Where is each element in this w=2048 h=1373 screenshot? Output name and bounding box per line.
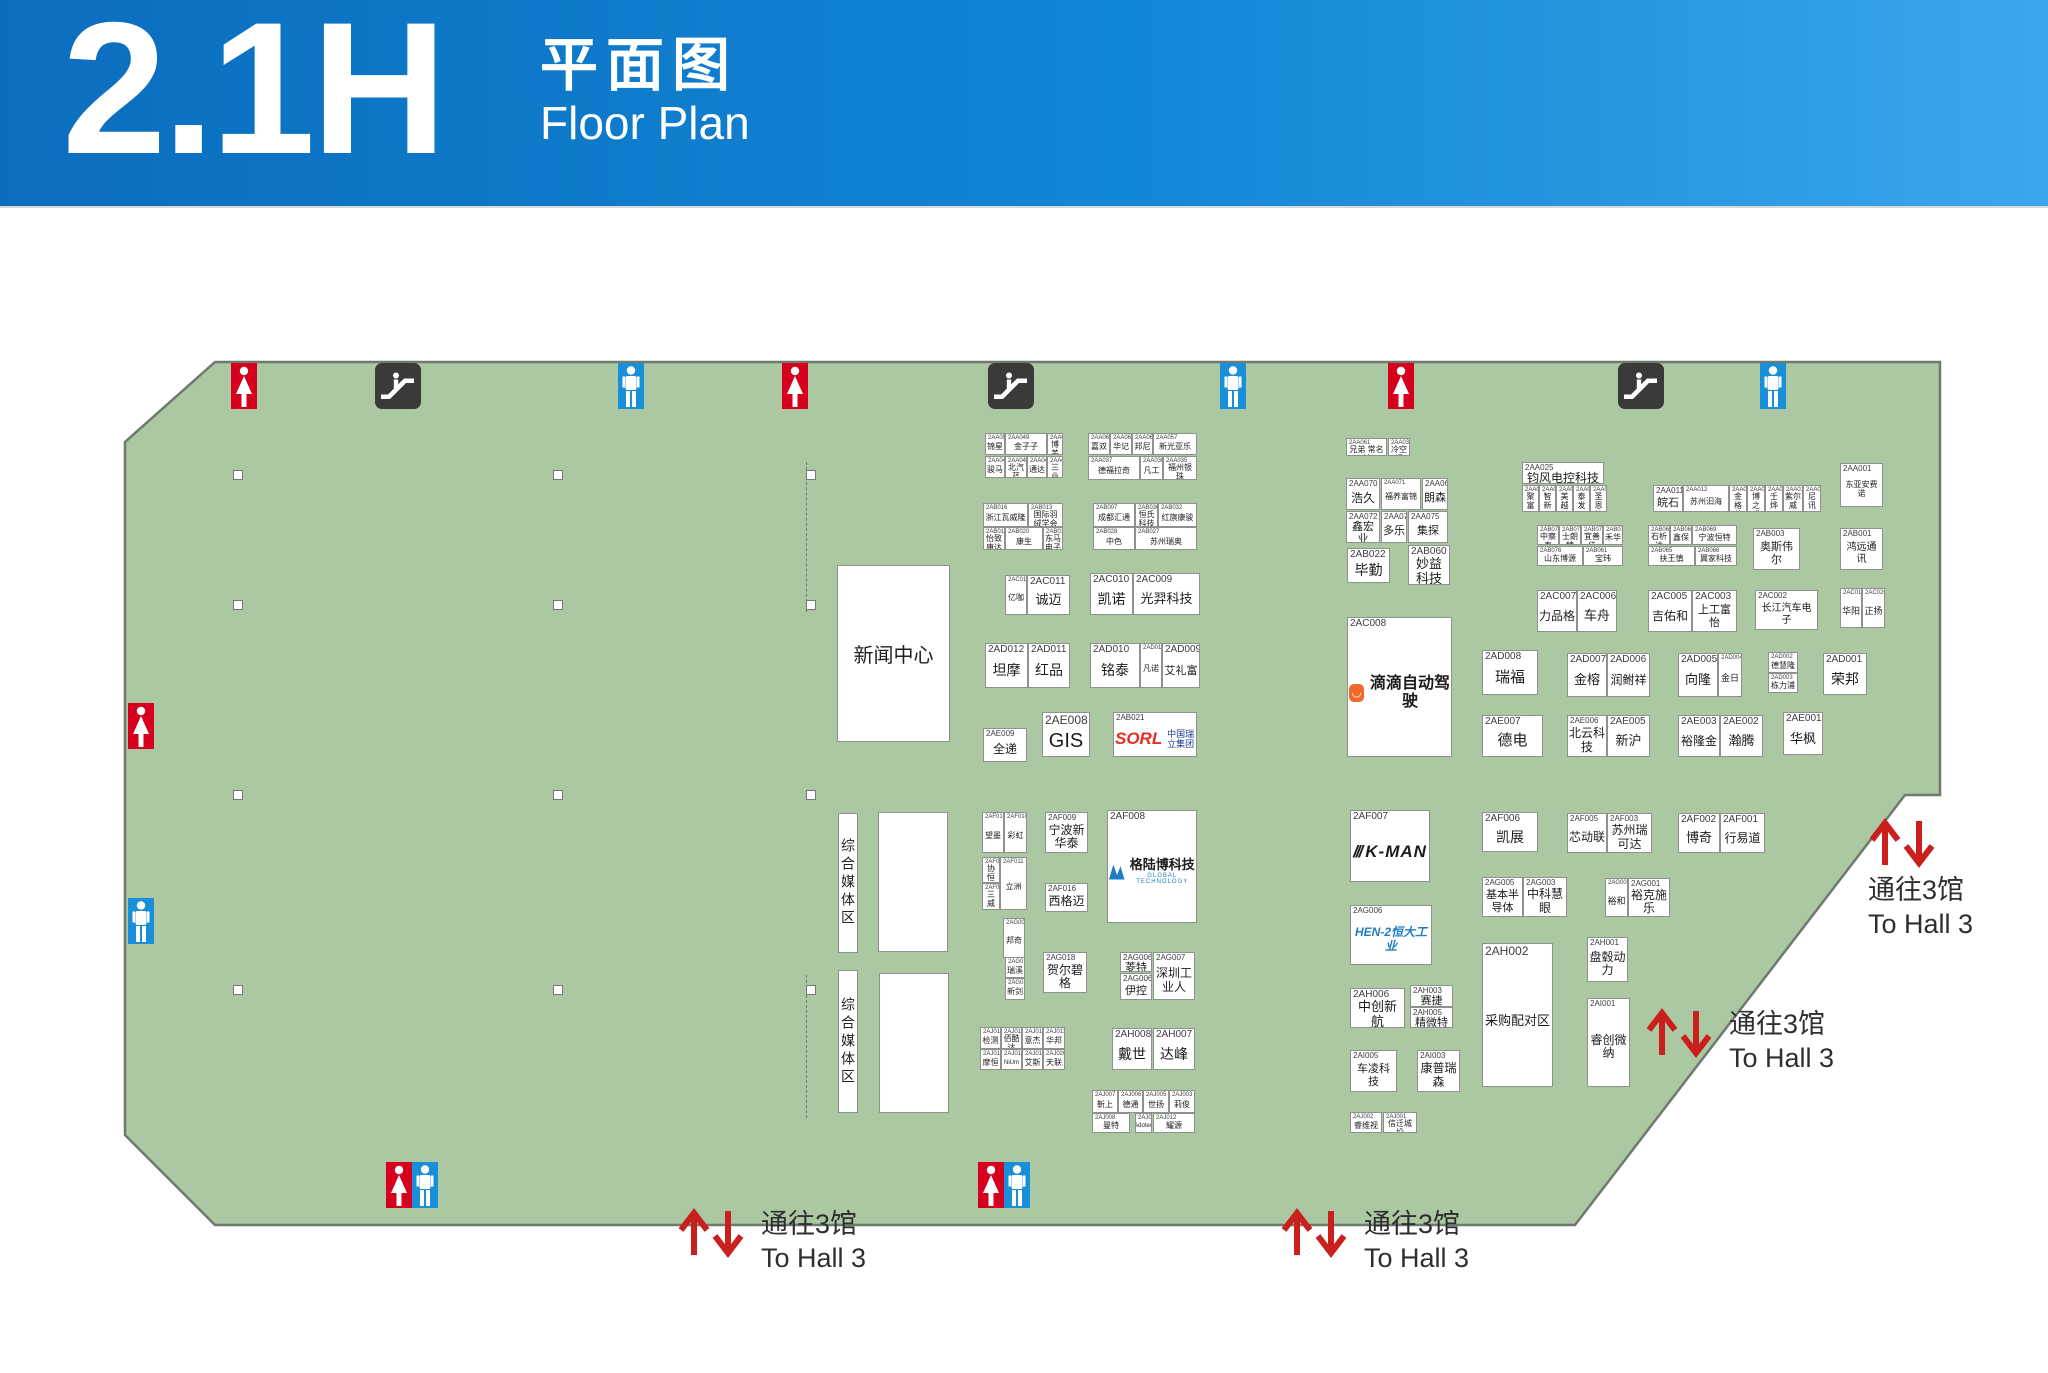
booth-id: 2AD008 [1483,651,1537,662]
booth-id: 2AB003 [1754,529,1799,538]
booth-2AJ005: 2AJ005世扬 [1143,1090,1169,1113]
booth-name: 鑫宏业 [1347,521,1379,543]
booth-name: 芯动联 [1568,823,1606,852]
booth-id: 2AD007 [1568,654,1606,665]
booth-name: 坦摩 [986,655,1027,687]
exit-label-zh: 通往3馆 [1364,1208,1469,1242]
booth-id: 2AG001 [1629,879,1669,888]
booth-2AH006: 2AH006中创新航 [1350,988,1405,1028]
booth-2AA067: 2AA067华记 [1110,433,1132,455]
booth-name: 国际羽绒学会 [1029,511,1062,527]
booth-2AB022: 2AB022毕勤 [1347,548,1390,583]
booth-name: 东亚安费诺 [1841,473,1882,506]
booth-name: 聚富 [1523,493,1538,511]
didi-logo-icon: ◡ [1349,684,1364,702]
booth-name: 通达 [1028,464,1046,477]
booth-name: 意杰 [1023,1035,1042,1048]
booth-name: 瑞溪 [1006,965,1024,977]
booth-name: 睿维视 [1351,1120,1381,1132]
booth-name: 贺尔碧格 [1044,962,1086,992]
booth-name: 行易道 [1721,825,1764,852]
booth-2AJ010: 2AJ010Adotec [1135,1113,1152,1133]
booth-id: 2AA070 [1347,479,1379,488]
booth-name: 金子子 [1006,441,1046,454]
booth-id: 2AH001 [1588,938,1627,947]
escalator-icon [375,363,421,409]
floor-plan-page: 2.1H 平面图 Floor Plan 新闻中心综合媒体区综合媒体区2AA052… [0,0,2048,1373]
booth-2AD002: 2AD002德慧隆 [1768,652,1798,673]
booth-id: 2AC003 [1693,591,1736,602]
booth-name: 向隆 [1679,665,1717,696]
booth-id: 2AD010 [1091,644,1139,655]
up-down-arrows-icon [677,1208,745,1258]
booth-name: 华记 [1111,441,1131,454]
booth-id: 2AA057 [1154,434,1196,441]
booth-name: 北云科技 [1568,725,1606,756]
booth-id: 2AB028 [1094,528,1134,535]
booth-2AJ019: 2AJ019艾斯 [1022,1049,1043,1070]
booth-2AF002: 2AF002博奇 [1678,813,1720,853]
booth-name: 赛捷 [1411,995,1452,1007]
booth-id: 2AA069 [1423,479,1447,488]
booth-id: 2AD003 [1769,674,1797,681]
booth-name: ◡滴滴自动驾驶 [1348,629,1451,756]
booth-id: 2AH003 [1411,986,1452,995]
booth-name: 华枫 [1784,724,1822,754]
booth-name: 奥斯伟尔 [1754,538,1799,569]
booth-name: 上工富怡 [1693,602,1736,631]
booth-2AB036: 2AB036恒氏科技 [1135,503,1158,527]
exit-label-zh: 通往3馆 [761,1208,866,1242]
booth-name: 正扬 [1863,596,1884,627]
booth-id: 2AB065 [1649,547,1694,554]
booth-name: 多乐 [1382,521,1406,542]
wc-male-icon [618,363,644,409]
booth-name: 皖石 [1654,495,1682,511]
booth-name: 戴世 [1113,1040,1151,1069]
booth-2AJ006: 2AJ006德通 [1118,1090,1143,1113]
booth-name: 苏州瑞奥 [1136,535,1196,549]
booth-2AF016: 2AF016西格迈 [1045,883,1088,912]
booth-name: 靳上 [1093,1098,1117,1112]
booth-name: 苏州汩海 [1684,493,1728,511]
booth-id: 2AI003 [1418,1051,1459,1060]
booth-2AH008: 2AH008戴世 [1112,1028,1152,1070]
booth-2AJ014: 2AJ014检测 [980,1027,1001,1049]
booth-id: 2AA011 [1654,486,1682,495]
booth-id: 2AB069 [1693,526,1736,533]
up-down-arrows-icon [1280,1208,1348,1258]
wc-male-icon [1760,363,1786,409]
booth-name: 德慧隆 [1769,660,1797,672]
booth-id: 2AE007 [1483,716,1542,727]
booth-2AG006B: 2AG006B伊控 [1120,973,1152,1000]
booth-name: 康生 [1006,535,1042,549]
booth-name: 全递 [984,738,1026,761]
booth-id: 2AH007 [1154,1029,1194,1040]
booth-name: 紫尔威 [1784,493,1802,511]
booth-2AF015: 2AF015望墨 [982,812,1004,853]
booth-name: 莉俊 [1170,1098,1194,1112]
booth-name: 士朗特 [1560,533,1580,545]
booth-2AE007: 2AE007德电 [1482,715,1543,757]
booth-2AD011: 2AD011红品 [1028,643,1070,688]
booth-name: 基本半导体 [1483,887,1522,916]
booth-2AC020: 2AC020正扬 [1862,588,1885,628]
booth-2AE008: 2AE008GIS [1042,712,1090,757]
booth-2AB021: 2AB021SORL中国瑞立集团 [1113,712,1197,757]
booth-2AJ007: 2AJ007靳上 [1092,1090,1118,1113]
booth-2AC009: 2AC009光羿科技 [1133,573,1200,615]
booth-name: 中察泰 [1538,533,1558,545]
booth-id: 2AG006A [1121,953,1151,962]
exit-label-en: To Hall 3 [1729,1042,1834,1076]
booth-id: 2AA075 [1409,512,1447,521]
booth-2AE006: 2AE006北云科技 [1567,715,1607,757]
booth-id: 2AD011 [1029,644,1069,655]
booth-name: 光羿科技 [1134,585,1199,614]
booth-name: 铭泰 [1091,655,1139,687]
booth-name: 华邦 [1044,1035,1064,1048]
booth-name: 福州银珠 [1164,464,1196,480]
booth-2AH007: 2AH007达峰 [1153,1028,1195,1070]
booth-id: 2AB027 [1136,528,1196,535]
booth-name: 东马电子 [1044,535,1062,550]
booth-name: 长江汽车电子 [1756,600,1817,629]
booth-id: 2AJ002 [1351,1113,1381,1120]
booth-id: 2AB016 [984,504,1027,511]
booth-name: 裕克施乐 [1629,888,1669,916]
booth-name: 浙江瓦威隆 [984,511,1027,526]
wc-male-icon [412,1162,438,1208]
booth-2AC012: 2AC012亿咖 [1005,575,1027,615]
booth-2AA070: 2AA070浩久 [1346,478,1380,510]
booth-id: 2AJ018 [1002,1050,1021,1057]
booth-2AF003: 2AF003苏州瑞可达 [1607,813,1652,853]
booth-id: 2AC009 [1134,574,1199,585]
booth-id: 2AF003 [1608,814,1651,823]
booth-name: 协恒 [983,865,999,883]
booth-2AA073: 2AA073多乐 [1381,511,1407,543]
booth-id: 2AC007 [1538,591,1576,602]
booth-2AC010: 2AC010凯诺 [1090,573,1133,615]
booth-name: 中科慧眼 [1524,887,1566,916]
booth-name: 华阳 [1841,596,1861,627]
booth-id: 2AB021 [1114,713,1196,722]
booth-id: 2AG010 [1006,958,1024,965]
booth-id: 2AG011 [1006,979,1024,986]
booth-2AA017: 2AA017紫尔威 [1783,485,1803,512]
booth-id: 2AG005 [1483,878,1522,887]
booth-2AA048: 2AA048通达 [1027,456,1047,478]
booth-2AG005: 2AG005基本半导体 [1482,877,1523,917]
booth-name: 博美 [1048,441,1062,455]
booth-name: HEN-2恒大工业 [1351,915,1431,964]
booth-name: 世扬 [1144,1098,1168,1112]
booth-id: 2AE001 [1784,713,1822,724]
booth-2AA031: 2AA031圣恩特 [1590,485,1607,512]
booth-2AF006: 2AF006凯展 [1482,812,1538,852]
booth-id: 2AE006 [1568,716,1606,725]
booth-2AG002: 2AG002裕和 [1605,878,1628,917]
booth-name: 中色 [1094,535,1134,549]
booth-name: 尼讯 [1804,493,1820,511]
booth-name: 宁波新华泰 [1046,822,1087,852]
booth-id: 2AB032 [1159,504,1196,511]
booth-2AB032: 2AB032红旗康骏 [1158,503,1197,527]
booth-name: 车凌科技 [1351,1060,1396,1091]
booth-2AF009: 2AF009宁波新华泰 [1045,812,1088,853]
booth-2AB016: 2AB016浙江瓦威隆 [983,503,1028,527]
structural-pillar [553,470,563,480]
booth-2AA018: 2AA018尼讯 [1803,485,1821,512]
booth-2AB067: 2AB067鑫保 [1670,525,1692,545]
booth-2AB069: 2AB069宁波恒特 [1692,525,1737,545]
booth-2AG008: 2AG008邦奇 [1003,918,1025,958]
structural-pillar [806,985,816,995]
booth-name: 扶王慎 [1649,554,1694,565]
booth-id: 2AJ010 [1136,1114,1151,1121]
booth-2AF008: 2AF008格陆博科技GLOBAL TECHNOLOGY [1107,810,1197,923]
booth-2AD010: 2AD010铭泰 [1090,643,1140,688]
booth-name: 新沪 [1608,727,1649,756]
booth-2AA025: 2AA025钧风电控科技 [1522,462,1604,484]
booth-id: 2AA046 [986,457,1004,464]
booth-2AG006: 2AG006HEN-2恒大工业 [1350,905,1432,965]
booth-id: 2AF001 [1721,814,1764,825]
media-zone-label-2: 综合媒体区 [838,970,858,1113]
booth-2AJ018: 2AJ018NiUm [1001,1049,1022,1070]
booth-2AG011: 2AG011新剑 [1005,978,1025,1000]
booth-name: K-MAN [1351,822,1429,881]
booth-name: 兄弟 常名赫 [1347,446,1386,456]
booth-name: 伊控 [1121,983,1151,999]
booth-2AJ002: 2AJ002睿维视 [1350,1112,1382,1133]
booth-2AH002: 2AH002采购配对区 [1482,943,1553,1087]
booth-id: 2AJ007 [1093,1091,1117,1098]
booth-2AD005: 2AD005向隆 [1678,653,1718,697]
booth-id: 2AD002 [1769,653,1797,660]
booth-name: 吉佑和 [1649,602,1691,631]
wc-male-icon [1220,363,1246,409]
booth-name: 瑞福 [1483,662,1537,694]
booth-2AE001: 2AE001华枫 [1783,712,1823,755]
booth-2AA028: 2AA028智新 [1539,485,1556,512]
booth-2AD004: 2AD004金日 [1718,653,1742,697]
wc-male-icon [1004,1162,1030,1208]
booth-id: 2AD012 [986,644,1027,655]
booth-2AB007: 2AB007成都汇通 [1093,503,1135,527]
booth-id: 2AB001 [1841,529,1882,538]
booth-name: 禾华 [1604,533,1622,544]
booth-id: 2AB076 [1538,547,1582,554]
exit-label: 通往3馆To Hall 3 [1729,1008,1834,1076]
booth-2AI001: 2AI001睿创微纳 [1587,998,1630,1087]
booth-id: 2AA072 [1347,512,1379,521]
booth-2AJ012: 2AJ012耀源 [1153,1113,1195,1133]
booth-2AH005: 2AH005精微特 [1410,1007,1453,1028]
booth-2AA016: 2AA016壬烨 [1765,485,1783,512]
wc-female-icon [782,363,808,409]
booth-id: 2AJ017 [981,1050,1000,1057]
up-down-arrows-icon [1868,818,1936,868]
booth-2AA029: 2AA029泰发 [1573,485,1590,512]
booth-id: 2AB067 [1671,526,1691,533]
exit-label-en: To Hall 3 [1868,908,1973,942]
booth-2AA063: 2AA063邦尼 [1132,433,1153,455]
booth-name: 荣邦 [1824,665,1866,694]
booth-name: 壬烨 [1766,493,1782,511]
exit-label-en: To Hall 3 [1364,1242,1469,1276]
booth-name: 浩久 [1347,488,1379,509]
booth-name: 菱特 [1121,962,1151,972]
booth-name: 诚迈 [1028,587,1069,614]
booth-2AD001: 2AD001荣邦 [1823,653,1867,695]
booth-name: 泰发 [1574,493,1589,511]
booth-id: 2AJ012 [1154,1114,1194,1121]
booth-id: 2AE009 [984,729,1026,738]
booth-name: 北汽蓝 [1006,464,1026,478]
booth-name: 山东博源 [1538,554,1582,565]
escalator-icon [1618,363,1664,409]
booth-name: 博奇 [1679,825,1719,852]
booth-name: 德福拉奇 [1089,464,1139,479]
booth-id: 2AD004 [1719,654,1741,661]
structural-pillar [233,790,243,800]
booth-id: 2AA048 [1028,457,1046,464]
booth-id: 2AJ008 [1093,1114,1129,1121]
booth-2AA026: 2AA026聚富 [1522,485,1539,512]
booth-2AI005: 2AI005车凌科技 [1350,1050,1397,1092]
booth-2AB013: 2AB013国际羽绒学会 [1028,503,1063,527]
booth-id: 2AG006B [1121,974,1151,983]
booth-2AB076: 2AB076山东博源 [1537,546,1583,566]
booth-2AA001: 2AA001东亚安费诺 [1840,463,1883,507]
booth-name: 栋力浦 [1769,681,1797,692]
booth-2AA015: 2AA015博之成 [1747,485,1765,512]
booth-name: 石析达 [1649,533,1669,545]
booth-2AA075: 2AA075集探 [1408,511,1448,543]
booth-name: 摩恒 [981,1057,1000,1069]
booth-name: 宁波恒特 [1693,533,1736,544]
booth-name: 信迁城投 [1384,1120,1416,1133]
booth-id: 2AF011 [1001,858,1026,865]
escalator-icon [988,363,1034,409]
booth-2AA069: 2AA069朗森 [1422,478,1448,510]
wc-female-icon [386,1162,412,1208]
structural-pillar [806,470,816,480]
partition-line [806,975,807,1118]
booth-2AC005: 2AC005吉佑和 [1648,590,1692,632]
booth-2AF001: 2AF001行易道 [1720,813,1765,853]
booth-name: 新剑 [1006,986,1024,999]
structural-pillar [233,470,243,480]
booth-name: 博之成 [1748,493,1764,512]
booth-name: 亿咖 [1006,583,1026,614]
booth-2AB020: 2AB020康生 [1005,527,1043,550]
booth-name: 望墨 [983,820,1003,852]
booth-id: 2AG002 [1606,879,1627,886]
booth-2AB078: 2AB078士朗特 [1559,525,1581,545]
booth-id: 2AA012 [1684,486,1728,493]
booth-name: 妙益科技 [1409,557,1449,585]
booth-2AC006: 2AC006车舟 [1577,590,1617,632]
booth-2AC007: 2AC007力品格 [1537,590,1577,632]
booth-id: 2AC020 [1863,589,1884,596]
gelubo-logo-subtitle: GLOBAL TECHNOLOGY [1130,873,1195,886]
sorl-logo: SORL [1115,729,1162,748]
structural-pillar [233,600,243,610]
booth-2AA049: 2AA049金子子 [1005,433,1047,455]
booth-name: 恒氏科技 [1136,511,1157,527]
booth-id: 2AC006 [1578,591,1616,602]
booth-id: 2AC008 [1348,618,1451,629]
booth-2AJ017: 2AJ017摩恒 [980,1049,1001,1070]
booth-id: 2AH002 [1483,944,1552,957]
booth-2AA035: 2AA035福州银珠 [1163,456,1197,480]
booth-id: 2AB071 [1604,526,1622,533]
booth-id: 2AD006 [1608,654,1649,665]
booth-2AB017: 2AB017东马电子 [1043,527,1063,550]
booth-2AA050: 2AA050博美 [1047,433,1063,455]
booth-2AF010: 2AF010彩虹 [1004,812,1027,853]
booth-2AB003: 2AB003奥斯伟尔 [1753,528,1800,570]
booth-id: 2AG018 [1044,953,1086,962]
booth-2AF011: 2AF011立洲 [1000,857,1027,910]
exit-label-zh: 通往3馆 [1729,1008,1834,1042]
booth-id: 2AE008 [1043,713,1089,726]
structural-pillar [233,985,243,995]
booth-2AE009: 2AE009全递 [983,728,1027,762]
booth-id: 2AJ006 [1119,1091,1142,1098]
booth-id: 2AC012 [1006,576,1026,583]
booth-name: 采购配对区 [1483,957,1552,1086]
booth-name: 凯诺 [1091,585,1132,614]
booth-id: 2AA001 [1841,464,1882,473]
booth-name: 嘉双 [1089,441,1109,454]
booth-id: 2AG003 [1524,878,1566,887]
booth-2AJ013: 2AJ013华邦 [1043,1027,1065,1049]
booth-id: 2AA052 [986,434,1004,441]
booth-name: 鸿远通讯 [1841,538,1882,569]
booth-2AD008: 2AD008瑞福 [1482,650,1538,695]
booth-id: 2AA036 [1141,457,1162,464]
booth-2AB028: 2AB028中色 [1093,527,1135,550]
booth-2AD009: 2AD009艾礼富 [1162,643,1200,688]
booth-name: 美越 [1557,493,1572,511]
booth-id: 2AJ003 [1170,1091,1194,1098]
booth-name: 集探 [1409,521,1447,542]
booth-2AF007: 2AF007K-MAN [1350,810,1430,882]
booth-2AC008: 2AC008◡滴滴自动驾驶 [1347,617,1452,757]
exit-label: 通往3馆To Hall 3 [1868,874,1973,942]
booth-2AB060: 2AB060妙益科技 [1408,545,1450,585]
booth-id: 2AF015 [983,813,1003,820]
booth-2AB066: 2AB066翼家科技 [1695,546,1737,566]
booth-name: 检测 [981,1035,1000,1048]
booth-name: 鑫保 [1671,533,1691,544]
booth-2AD007: 2AD007金榕 [1567,653,1607,697]
wc-female-icon [231,363,257,409]
booth-name: 金日 [1719,661,1741,696]
booth-2AA066: 2AA066嘉双 [1088,433,1110,455]
booth-id: 2AA071 [1382,479,1420,486]
booth-id: 2AF002 [1679,814,1719,825]
booth-name: 圣恩特 [1591,493,1606,512]
booth-2AG003: 2AG003中科慧眼 [1523,877,1567,917]
booth-2AB068: 2AB068石析达 [1648,525,1670,545]
booth-name: Adotec [1136,1121,1151,1132]
